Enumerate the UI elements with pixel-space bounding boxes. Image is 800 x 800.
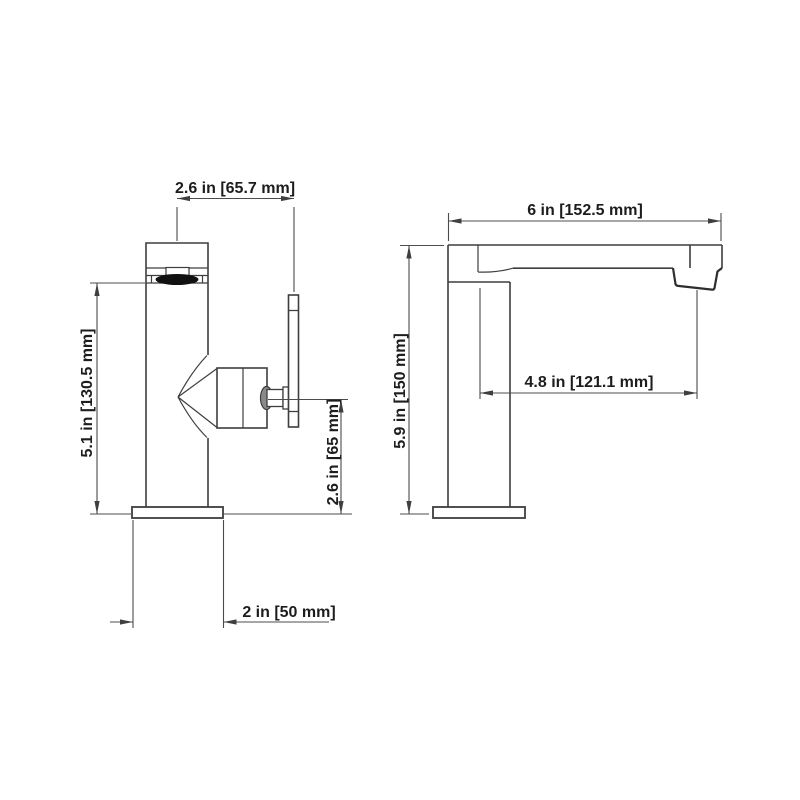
- aerator-outlet: [156, 274, 199, 285]
- dimension-label-handle-height: 2.6 in [65 mm]: [325, 399, 342, 506]
- spout-tip: [673, 268, 722, 290]
- dimension-label-spout-reach: 4.8 in [121.1 mm]: [525, 374, 654, 391]
- dimension-label-handle-reach: 2.6 in [65.7 mm]: [175, 180, 295, 197]
- extension-line: [133, 520, 224, 628]
- dimension-label-base-width: 2 in [50 mm]: [242, 604, 335, 621]
- dimension-label-aerator-height: 5.1 in [130.5 mm]: [79, 329, 96, 458]
- dimension-label-overall-length: 6 in [152.5 mm]: [527, 202, 643, 219]
- spout-underside-detail: [478, 245, 513, 272]
- dim-base-width: 2 in [50 mm]: [110, 520, 336, 628]
- handle-bar: [289, 295, 299, 427]
- handle-cone-lines: [178, 356, 217, 438]
- front-base-plate: [132, 507, 223, 518]
- valve-cylinder: [217, 368, 267, 428]
- dim-overall-length: 6 in [152.5 mm]: [449, 202, 722, 241]
- handle-shaft: [267, 390, 283, 407]
- dim-overall-height: 5.9 in [150 mm]: [392, 246, 444, 515]
- dim-aerator-height: 5.1 in [130.5 mm]: [79, 283, 352, 514]
- dim-spout-reach: 4.8 in [121.1 mm]: [480, 288, 697, 399]
- dimensions: 2.6 in [65.7 mm] 5.1 in [130.5 mm] 2.6 i…: [79, 180, 721, 628]
- side-base-plate: [433, 507, 525, 518]
- dim-handle-height: 2.6 in [65 mm]: [268, 399, 348, 514]
- handle-bracket: [283, 387, 289, 409]
- technical-drawing-canvas: 2.6 in [65.7 mm] 5.1 in [130.5 mm] 2.6 i…: [0, 0, 800, 800]
- faucet-dimension-drawing: 2.6 in [65.7 mm] 5.1 in [130.5 mm] 2.6 i…: [0, 0, 800, 800]
- front-view: [132, 243, 299, 518]
- dimension-label-overall-height: 5.9 in [150 mm]: [392, 333, 409, 449]
